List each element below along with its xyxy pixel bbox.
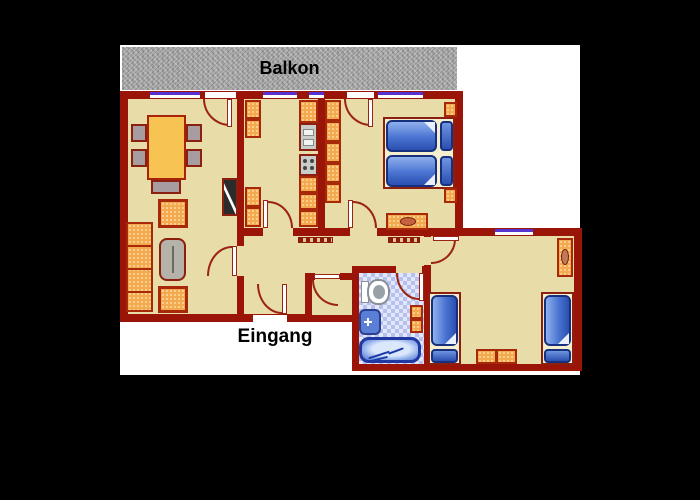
radiator — [388, 237, 420, 243]
wardrobe — [325, 183, 341, 203]
window-glass — [150, 92, 200, 95]
kitchen-counter — [299, 193, 318, 210]
door-leaf — [314, 274, 340, 279]
window-glass — [495, 229, 533, 232]
doorway-bedroom-twin — [424, 237, 431, 265]
mattress-fold — [445, 333, 456, 344]
bed-pillow — [440, 156, 453, 186]
mattress-fold — [424, 122, 435, 133]
doorway-kitchen — [263, 228, 293, 236]
window-glass — [263, 92, 297, 95]
armchair — [158, 199, 188, 228]
wall-bottom-lower — [352, 364, 582, 371]
entrance-doorway — [253, 315, 287, 322]
burner — [310, 166, 314, 170]
dining-chair — [186, 149, 202, 167]
kitchen-cabinet — [245, 100, 261, 119]
door-leaf — [227, 99, 232, 127]
kitchen-cabinet — [245, 119, 261, 138]
bed-pillow — [440, 121, 453, 151]
door-leaf — [232, 246, 237, 276]
burner — [303, 159, 307, 163]
dining-table — [147, 115, 186, 180]
sink-basin — [303, 139, 314, 146]
bed-pillow — [431, 349, 458, 363]
window-glass — [378, 92, 423, 95]
floor-plan: Balkon — [0, 0, 700, 500]
tv — [222, 178, 238, 216]
wardrobe — [325, 121, 341, 142]
side-table — [476, 349, 497, 364]
side-table — [496, 349, 517, 364]
dresser — [386, 213, 428, 230]
sofa-cushion-divider — [128, 291, 151, 293]
armchair — [158, 286, 188, 313]
wall-right-lower — [574, 228, 582, 371]
wardrobe — [325, 142, 341, 163]
entrance-label-box: Eingang — [215, 326, 335, 346]
doorway-bedroom-double — [350, 228, 377, 236]
entrance-door-leaf — [282, 284, 287, 314]
sofa-cushion-divider — [128, 245, 151, 247]
wardrobe — [325, 163, 341, 183]
door-leaf — [433, 236, 459, 241]
kitchen-cabinet — [245, 187, 261, 207]
balcony-label: Balkon — [259, 58, 319, 79]
sofa-cushion-divider — [128, 268, 151, 270]
toilet — [367, 279, 390, 305]
door-leaf — [419, 273, 424, 301]
kitchen-counter — [299, 210, 318, 227]
mirror-dresser — [557, 238, 573, 277]
kitchen-counter — [299, 176, 318, 193]
door-leaf — [368, 99, 373, 127]
kitchen-stove — [299, 154, 318, 176]
coffee-table-line — [172, 246, 174, 273]
kitchen-counter — [299, 100, 318, 123]
wall-kitchen-bedroom — [318, 91, 325, 236]
entrance-label: Eingang — [238, 326, 313, 347]
mattress-fold — [424, 174, 435, 185]
doorway-bathroom — [396, 266, 422, 273]
wardrobe — [325, 100, 341, 121]
radiator — [298, 237, 333, 243]
burner — [303, 166, 307, 170]
coffee-table — [159, 238, 186, 281]
water-line — [388, 347, 404, 354]
dining-chair — [151, 180, 181, 194]
balcony-doorway — [205, 92, 236, 98]
door-leaf — [263, 200, 268, 228]
wall-livingroom-kitchen — [237, 91, 244, 322]
wall-bathroom-left — [352, 266, 359, 371]
toilet-seat — [373, 285, 385, 299]
faucet-cross — [367, 318, 369, 326]
sink-basin — [303, 129, 314, 136]
sofa — [126, 222, 153, 312]
washbasin — [359, 309, 381, 335]
bathtub — [359, 337, 421, 363]
mattress-fold — [558, 333, 569, 344]
dining-chair — [131, 124, 147, 142]
wall-vestibule-bottom — [305, 315, 359, 322]
bed-pillow — [544, 349, 571, 363]
bathroom-cabinet — [410, 305, 423, 319]
bathroom-cabinet — [410, 319, 423, 333]
balcony-doorway — [347, 92, 374, 98]
dresser-decor — [400, 217, 416, 226]
dining-chair — [186, 124, 202, 142]
door-leaf — [348, 200, 353, 228]
window-glass — [309, 92, 324, 95]
doorway-living-room — [237, 246, 244, 276]
burner — [310, 159, 314, 163]
nightstand — [444, 102, 457, 117]
nightstand — [444, 188, 457, 203]
balcony-area: Balkon — [122, 47, 457, 90]
dining-chair — [131, 149, 147, 167]
mirror — [561, 249, 569, 265]
kitchen-cabinet — [245, 207, 261, 227]
kitchen-sink — [299, 123, 318, 151]
